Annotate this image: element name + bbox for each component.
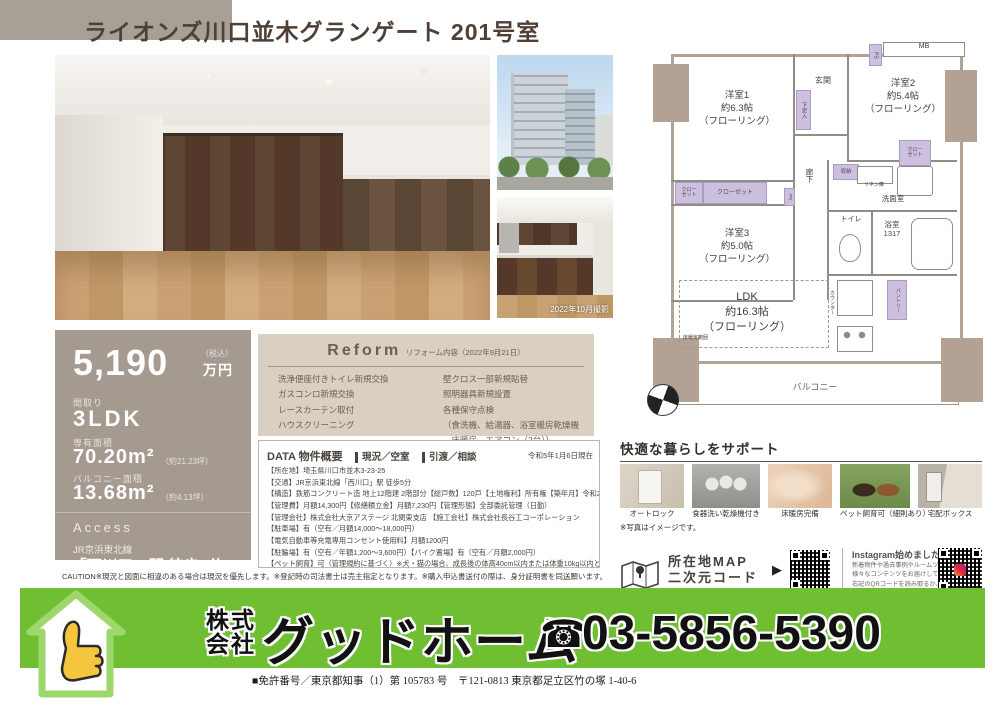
page-title: ライオンズ川口並木グランゲート 201号室 <box>84 13 540 47</box>
locker-panel <box>926 472 942 502</box>
closet-a: クローゼット <box>703 182 767 204</box>
data-line: 【ペット飼育】可（管理規約に基づく）※犬・猫の場合、成長後の体高40cm以内また… <box>267 558 599 568</box>
support-note: ※写真はイメージです。 <box>620 522 700 533</box>
reform-heading-row: Reform リフォーム内容（2022年9月21日） <box>258 342 594 360</box>
room3-label: 洋室3 約5.0帖 （フローリング） <box>687 228 787 266</box>
photo-date-caption: 2022年10月撮影 <box>550 304 609 315</box>
street <box>497 177 613 190</box>
room2-label: 洋室2 約5.4帖 （フローリング） <box>853 78 953 116</box>
reform-item: ハウスクリーニング <box>278 418 389 433</box>
linen-label: リネン庫 <box>857 183 891 189</box>
side-wall-left <box>55 115 163 255</box>
heating-label: 床暖房範囲 <box>683 336 723 342</box>
balcony-label: バルコニー <box>765 382 865 393</box>
mb-box: MB <box>883 42 965 57</box>
kitchen-photo: 2022年10月撮影 <box>497 197 613 318</box>
reform-item: レースカーテン取付 <box>278 403 389 418</box>
price-unit: 万円 <box>203 360 233 380</box>
data-status: 現況／空室 <box>355 452 410 463</box>
price-tax-note: （税込） <box>201 348 233 359</box>
room1-label: 洋室1 約6.3帖 （フローリング） <box>687 90 787 128</box>
support-heading: 快適な暮らしをサポート <box>620 438 982 458</box>
map-icon <box>620 558 660 592</box>
map-qr-label: 所在地MAP 二次元コード <box>668 554 758 587</box>
balcony-tsubo: （約4.13坪） <box>161 492 209 503</box>
data-line: 【駐車場】有（空有／月額14,000～18,000円） <box>267 523 599 535</box>
wall-block <box>941 338 983 402</box>
instagram-heading: Instagram始めました！ <box>852 548 940 561</box>
partition <box>871 210 873 274</box>
floor-heating-photo <box>768 464 832 508</box>
kitchen-ceiling <box>497 197 613 223</box>
wall-block <box>653 64 689 122</box>
arrow-icon: ▶ <box>772 562 782 578</box>
qr-eye <box>791 551 800 560</box>
support-thumbnails: オートロック 食器洗い乾燥機付き 床暖房完備 ペット飼育可（細則あり） 宅配ボッ… <box>620 464 982 519</box>
qr-eye <box>939 549 948 558</box>
delivery-box-photo <box>918 464 982 508</box>
instagram-logo-icon <box>954 564 966 576</box>
reform-subheading: リフォーム内容（2022年9月21日） <box>406 348 525 357</box>
building-exterior-photo <box>497 55 613 190</box>
wash-label: 洗面室 <box>863 194 923 203</box>
dishwasher-photo <box>692 464 760 508</box>
genkan-label: 玄関 <box>801 76 845 86</box>
storage-box: 収納 <box>833 164 859 180</box>
price-panel: 5,190 （税込） 万円 間取り 3LDK 専有面積 70.20m² （約21… <box>55 330 251 560</box>
closet-c: クロー ゼット <box>899 140 931 166</box>
support-caption: 宅配ボックス <box>918 508 982 519</box>
autolock-photo <box>620 464 684 508</box>
support-caption: オートロック <box>620 508 684 519</box>
partition <box>827 160 829 300</box>
pantry-box: パントリー <box>887 280 907 320</box>
range-hood <box>499 223 519 253</box>
counter-label: カウンター <box>829 280 835 324</box>
shoe-box: 下足入 <box>796 90 811 130</box>
flyer-page: ライオンズ川口並木グランゲート 201号室 2022年10月撮影 5,190 （… <box>0 0 1000 705</box>
phone-icon: ☎ <box>540 612 587 657</box>
closet-b: クロー ゼット <box>675 182 703 204</box>
balcony-value: 13.68m² <box>73 482 155 505</box>
reform-item: 照明器具新規設置 <box>443 387 579 402</box>
kitchen-right-wall <box>593 223 613 295</box>
reform-items-left: 洗浄便座付きトイレ新規交換 ガスコンロ新規交換 レースカーテン取付 ハウスクリー… <box>278 372 389 433</box>
reform-item: （食洗機、給湯器、浴室暖房乾燥機 <box>443 418 579 433</box>
data-handover: 引渡／相談 <box>422 452 477 463</box>
closet-label: クロー ゼット <box>681 188 696 199</box>
ps-box: PS <box>869 44 882 66</box>
sliding-wood-doors <box>163 133 343 254</box>
support-section: 快適な暮らしをサポート オートロック 食器洗い乾燥機付き 床暖房完備 ペット飼育… <box>620 438 982 538</box>
layout-value: 3LDK <box>73 406 142 432</box>
partition <box>671 204 793 206</box>
bath-label: 浴室 1317 <box>875 220 909 238</box>
map-qr-code <box>790 550 830 590</box>
reform-items-right: 壁クロス一部新規貼替 照明器具新規設置 各種保守点検 （食洗機、給湯器、浴室暖房… <box>443 372 579 448</box>
company-name: グッドホーム <box>262 600 578 675</box>
toilet-label: トイレ <box>831 216 871 224</box>
data-line: 【構造】鉄筋コンクリート造 地上12階建 2階部分【総戸数】120戸【土地権利】… <box>267 488 599 500</box>
support-rule <box>620 461 982 462</box>
support-caption: 床暖房完備 <box>768 508 832 519</box>
support-caption: 食器洗い乾燥機付き <box>692 508 760 519</box>
ps-label: PS <box>873 52 879 59</box>
building-tower <box>511 73 568 165</box>
company-logo-house-thumb-icon <box>26 590 126 698</box>
reform-rule <box>268 366 584 367</box>
reform-panel: Reform リフォーム内容（2022年9月21日） 洗浄便座付きトイレ新規交換… <box>258 334 594 436</box>
shoe-label: 下足入 <box>800 102 806 119</box>
price-value: 5,190 <box>73 342 168 384</box>
kitchen-counter <box>343 175 490 259</box>
data-line: 【交通】JR京浜東北線「西川口」駅 徒歩5分 <box>267 477 599 489</box>
reform-item: 壁クロス一部新規貼替 <box>443 372 579 387</box>
pets-photo <box>840 464 910 508</box>
partition <box>847 54 849 160</box>
caution-note: CAUTION※現況と図面に相違のある場合は現況を優先します。※登記時の司法書士… <box>62 571 607 582</box>
company-prefix: 株式 会社 <box>206 608 256 656</box>
divider <box>55 512 251 513</box>
reform-item: 洗浄便座付きトイレ新規交換 <box>278 372 389 387</box>
intercom-panel <box>638 470 662 504</box>
partition <box>827 274 957 276</box>
bathtub <box>911 218 953 270</box>
support-item: ペット飼育可（細則あり） <box>840 464 910 519</box>
data-line: 【電気自動車等充電専用コンセント使用料】月額1200円 <box>267 535 599 547</box>
instagram-line: 様々なコンテンツをお届けしています。 <box>852 570 940 579</box>
data-header-row: DATA 物件概要 現況／空室 引渡／相談 令和5年1月6日現在 <box>267 447 593 465</box>
qr-eye <box>820 551 829 560</box>
data-line: 【駐輪場】有（空有／年額1,200～3,600円）【バイク置場】有（空有／月額2… <box>267 547 599 559</box>
building-side <box>565 89 595 165</box>
data-line: 【所在地】埼玉県川口市並木3-23-25 <box>267 465 599 477</box>
lower-cabinets <box>497 255 593 298</box>
phone-number: 03-5856-5390 <box>582 606 881 661</box>
kitchen-stove <box>837 326 873 352</box>
area-value: 70.20m² <box>73 446 155 469</box>
license-address-line: ■免許番号／東京都知事（1）第 105783 号 〒121-0813 東京都足立… <box>252 673 636 688</box>
data-line: 【管理費】月額14,300円【修繕積立金】月額7,230円【管理形態】全部委託管… <box>267 500 599 512</box>
kitchen-sink <box>837 280 873 316</box>
company-prefix-line: 株式 <box>206 608 256 632</box>
data-heading: DATA 物件概要 <box>267 451 343 463</box>
support-item: 宅配ボックス <box>918 464 982 519</box>
floorplan: MB PS 洋室1 約6.3帖 （フローリング） 洋室2 約5.4帖 （フローリ… <box>645 42 985 440</box>
reform-heading: Reform <box>327 342 401 359</box>
company-prefix-line: 会社 <box>206 632 256 656</box>
support-caption: ペット飼育可（細則あり） <box>840 508 910 519</box>
data-as-of: 令和5年1月6日現在 <box>528 450 593 461</box>
ps2-box: PS <box>784 188 795 206</box>
partition <box>827 210 957 212</box>
wood-floor <box>55 251 490 320</box>
reform-item: 各種保守点検 <box>443 403 579 418</box>
washbasin <box>897 166 933 196</box>
support-item: 食器洗い乾燥機付き <box>692 464 760 519</box>
support-item: オートロック <box>620 464 684 519</box>
downlight-icon <box>205 73 213 78</box>
toilet-shape <box>839 234 861 262</box>
closet-label: クローゼット <box>717 190 753 197</box>
area-tsubo: （約21.23坪） <box>161 456 213 467</box>
pantry-label: パントリー <box>894 288 900 313</box>
ps-label: PS <box>787 194 792 200</box>
hall-label: 廊下 <box>805 158 814 192</box>
support-item: 床暖房完備 <box>768 464 832 519</box>
closet-label: クロー ゼット <box>907 148 922 159</box>
data-lines: 【所在地】埼玉県川口市並木3-23-25 【交通】JR京浜東北線「西川口」駅 徒… <box>267 465 599 568</box>
instagram-line: 新着物件や過去事例やルームツアー動画など <box>852 561 940 570</box>
partition <box>793 134 847 136</box>
trees <box>497 155 613 179</box>
storage-label: 収納 <box>840 169 851 175</box>
data-panel: DATA 物件概要 現況／空室 引渡／相談 令和5年1月6日現在 【所在地】埼玉… <box>258 440 600 568</box>
living-room-photo <box>55 55 490 320</box>
mb-label: MB <box>884 43 964 51</box>
reform-item: ガスコンロ新規交換 <box>278 387 389 402</box>
access-label: Access <box>73 520 133 535</box>
qr-eye <box>972 549 981 558</box>
instagram-qr-code <box>938 548 982 592</box>
partition <box>793 54 795 204</box>
data-line: 【管理会社】株式会社大京アステージ 北関東支店 【施工会社】株式会社長谷工コーポ… <box>267 512 599 524</box>
